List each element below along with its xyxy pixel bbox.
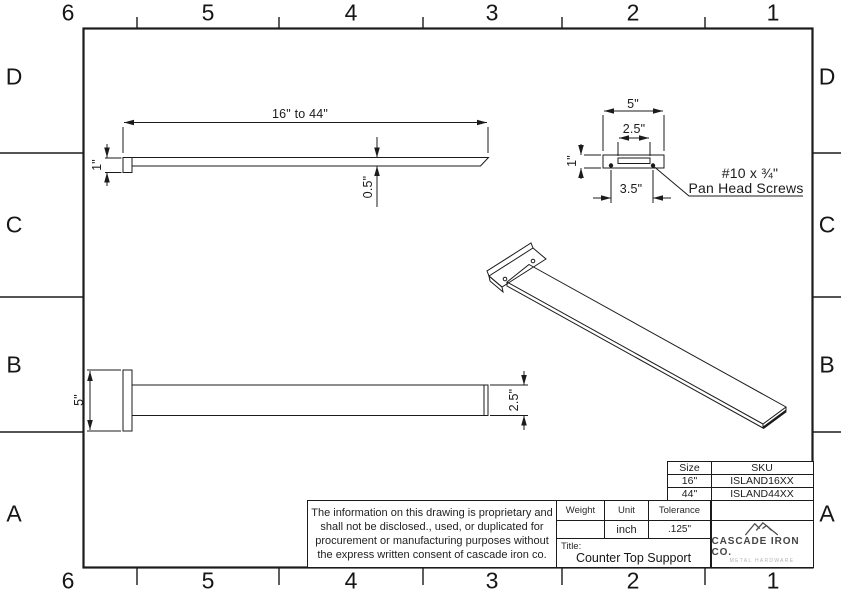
logo-tagline: METAL HARDWARE	[730, 558, 795, 564]
zone-col-label: 3	[486, 568, 499, 595]
zone-row-label: B	[6, 352, 21, 379]
dim-bar-thickness: 0.5"	[361, 176, 375, 199]
zone-row-label: A	[6, 501, 21, 528]
zone-row-label: C	[6, 212, 23, 239]
dim-length-range: 16" to 44"	[272, 107, 328, 121]
drawing-title: Counter Top Support	[576, 551, 691, 565]
sku-table-header-sku: SKU	[711, 461, 814, 475]
zone-row-label: B	[819, 352, 834, 379]
title-label: Title:	[561, 541, 581, 552]
zone-col-label: 1	[767, 568, 780, 595]
dim-bar-width-top: 2.5"	[507, 389, 521, 412]
zone-col-label: 1	[767, 0, 780, 27]
zone-col-label: 3	[486, 0, 499, 27]
dim-slot-width-front: 2.5"	[623, 122, 646, 136]
logo-box: CASCADE IRON CO. METAL HARDWARE	[711, 520, 814, 568]
unit-value-cell: inch	[604, 520, 649, 539]
weight-value-cell	[556, 520, 605, 539]
dim-plate-height-front: 1"	[565, 155, 579, 167]
dim-plate-width-front: 5"	[627, 97, 639, 111]
unit-header-cell: Unit	[604, 500, 649, 521]
proprietary-notice-box: The information on this drawing is propr…	[307, 500, 557, 568]
zone-row-label: D	[6, 64, 23, 91]
tolerance-value-cell: .125"	[648, 520, 711, 539]
empty-cell	[711, 500, 814, 521]
weight-header-cell: Weight	[556, 500, 605, 521]
isometric-view	[487, 243, 786, 428]
zone-row-label: D	[819, 64, 836, 91]
title-cell: Title: Counter Top Support	[556, 538, 711, 568]
screw-note-line2: Pan Head Screws	[688, 180, 803, 196]
zone-col-label: 4	[345, 568, 358, 595]
zone-row-label: C	[819, 212, 836, 239]
top-view	[87, 370, 528, 431]
dim-plate-height-side: 1"	[90, 159, 104, 171]
sku-table-header-size: Size	[667, 461, 712, 475]
zone-col-label: 6	[62, 568, 75, 595]
zone-col-label: 5	[202, 0, 215, 27]
sku-table-cell: ISLAND16XX	[711, 474, 814, 488]
mountain-logo-icon	[743, 521, 781, 536]
side-view	[105, 123, 489, 208]
screw-note-line1: #10 x ¾"	[722, 165, 778, 181]
zone-col-label: 2	[627, 568, 640, 595]
dim-plate-width-top: 5"	[72, 394, 86, 406]
proprietary-notice-text: The information on this drawing is propr…	[311, 506, 553, 562]
zone-col-label: 2	[627, 0, 640, 27]
zone-col-label: 4	[345, 0, 358, 27]
zone-col-label: 6	[62, 0, 75, 27]
sku-table-cell: 16"	[667, 474, 712, 488]
logo-company-name: CASCADE IRON CO.	[712, 536, 813, 558]
dim-hole-spacing: 3.5"	[620, 182, 643, 196]
zone-row-label: A	[819, 501, 834, 528]
zone-col-label: 5	[202, 568, 215, 595]
tolerance-header-cell: Tolerance	[648, 500, 711, 521]
drawing-sheet: 6 5 4 3 2 1 6 5 4 3 2 1 D C B A D C B A …	[0, 0, 841, 595]
